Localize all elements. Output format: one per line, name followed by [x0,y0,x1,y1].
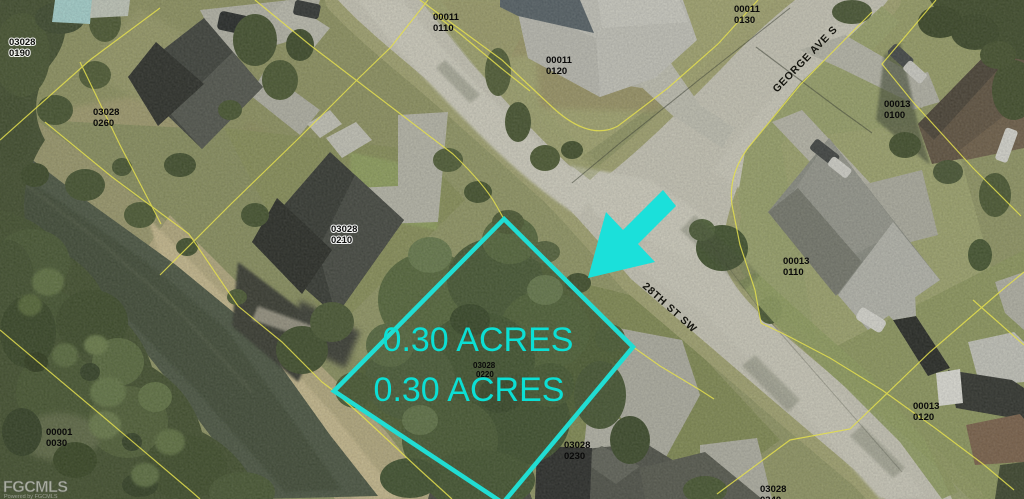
svg-text:03028: 03028 [473,361,496,370]
svg-text:0.30 ACRES: 0.30 ACRES [374,371,565,409]
svg-text:0120: 0120 [913,412,934,423]
svg-text:0190: 0190 [9,48,30,59]
svg-text:0130: 0130 [734,15,755,26]
svg-text:0230: 0230 [564,451,585,462]
svg-text:00011: 00011 [546,55,573,66]
svg-text:00011: 00011 [433,12,460,23]
svg-text:0240: 0240 [760,495,781,499]
svg-text:03028: 03028 [93,107,119,118]
svg-text:0100: 0100 [884,110,905,121]
svg-text:00001: 00001 [46,427,73,438]
svg-text:00013: 00013 [884,99,910,110]
svg-text:0110: 0110 [783,267,804,278]
svg-text:0030: 0030 [46,438,67,449]
svg-text:0120: 0120 [546,66,567,77]
svg-text:0260: 0260 [93,118,114,129]
svg-text:03028: 03028 [564,440,590,451]
svg-text:00011: 00011 [734,4,761,15]
svg-text:0110: 0110 [433,23,454,34]
svg-text:03028: 03028 [331,224,357,235]
svg-text:0.30 ACRES: 0.30 ACRES [383,321,574,359]
svg-text:0210: 0210 [331,235,352,246]
svg-text:Powered by FGCMLS: Powered by FGCMLS [4,494,58,499]
svg-text:00013: 00013 [783,256,809,267]
svg-text:00013: 00013 [913,401,939,412]
svg-text:03028: 03028 [9,37,35,48]
svg-text:03028: 03028 [760,484,786,495]
